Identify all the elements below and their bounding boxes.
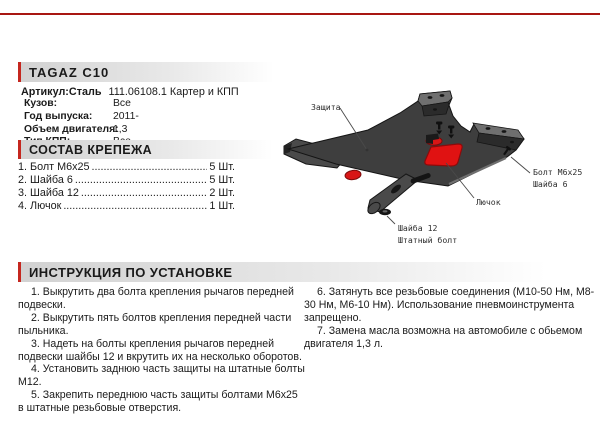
label-shayba6: Шайба 6 [533,179,568,189]
instruction-step: 1. Выкрутить два болта крепления рычагов… [18,286,306,312]
label-shayba12: Шайба 12 [398,223,438,233]
washer-12 [379,209,391,215]
label-shtatny-bolt: Штатный болт [398,235,457,245]
article-row: Артикул:Сталь 111.06108.1 Картер и КПП [21,86,239,98]
red-hole-marker [344,169,361,180]
front-left-tab [418,91,452,116]
instruction-step: 7. Замена масла возможна на автомобиле с… [304,325,596,351]
model-title-bar: TAGAZ C10 [18,62,296,82]
label-bolt-m6x25: Болт M6x25 [533,167,582,177]
instructions-right-column: 6. Затянуть все резьбовые соединения (M1… [304,286,596,351]
fastener-name: 3. Шайба 12 [18,187,79,200]
fastener-qty: 1 Шт. [209,200,235,213]
dot-leader [92,161,208,174]
spec-label: Кузов: [24,98,57,109]
fasteners-title: СОСТАВ КРЕПЕЖА [29,143,152,157]
fasteners-header-bar: СОСТАВ КРЕПЕЖА [18,140,295,159]
hatch-red [425,144,462,166]
fastener-name: 2. Шайба 6 [18,174,73,187]
instruction-step: 5. Закрепить переднюю часть защиты болта… [18,389,306,415]
list-item: 2. Шайба 6 5 Шт. [18,174,235,187]
article-value: 111.06108.1 Картер и КПП [108,86,238,98]
instruction-step: 3. Надеть на болты крепления рычагов пер… [18,338,306,364]
fastener-list: 1. Болт M6x25 5 Шт. 2. Шайба 6 5 Шт. 3. … [18,161,235,213]
fastener-name: 1. Болт M6x25 [18,161,90,174]
spec-row-engine: Объем двигателя: 1,3 [24,124,244,137]
list-item: 4. Лючок 1 Шт. [18,200,235,213]
bottom-arm [366,172,432,216]
label-lyuchok: Лючок [476,197,501,207]
spec-label: Год выпуска: [24,111,92,122]
list-item: 1. Болт M6x25 5 Шт. [18,161,235,174]
dot-leader [63,200,207,213]
spec-value: 1,3 [113,124,127,137]
dot-leader [81,187,207,200]
instructions-header-bar: ИНСТРУКЦИЯ ПО УСТАНОВКЕ [18,262,592,282]
list-item: 3. Шайба 12 2 Шт. [18,187,235,200]
leader-dot [366,149,369,152]
fastener-qty: 2 Шт. [209,187,235,200]
article-label: Артикул:Сталь [21,86,101,98]
instruction-step: 4. Установить заднюю часть защиты на шта… [18,363,306,389]
fastener-name: 4. Лючок [18,200,61,213]
dot-leader [75,174,207,187]
spec-row-body: Кузов: Все [24,98,244,111]
spec-row-year: Год выпуска: 2011- [24,111,244,124]
page-title: TAGAZ C10 [29,65,109,80]
spec-value: Все [113,98,131,111]
fastener-qty: 5 Шт. [209,174,235,187]
spec-label: Объем двигателя: [24,124,119,135]
spec-value: 2011- [113,111,139,124]
instruction-sheet: TAGAZ C10 Артикул:Сталь 111.06108.1 Карт… [0,0,600,424]
instruction-step: 6. Затянуть все резьбовые соединения (M1… [304,286,596,325]
instructions-left-column: 1. Выкрутить два болта крепления рычагов… [18,286,306,415]
label-zashita: Защита [311,102,341,112]
skid-plate-diagram: Защита Болт M6x25 Шайба 6 Лючок Шайба 12… [280,88,600,263]
top-red-rule [0,13,600,15]
fastener-qty: 5 Шт. [209,161,235,174]
instruction-step: 2. Выкрутить пять болтов крепления перед… [18,312,306,338]
instructions-title: ИНСТРУКЦИЯ ПО УСТАНОВКЕ [29,265,232,280]
